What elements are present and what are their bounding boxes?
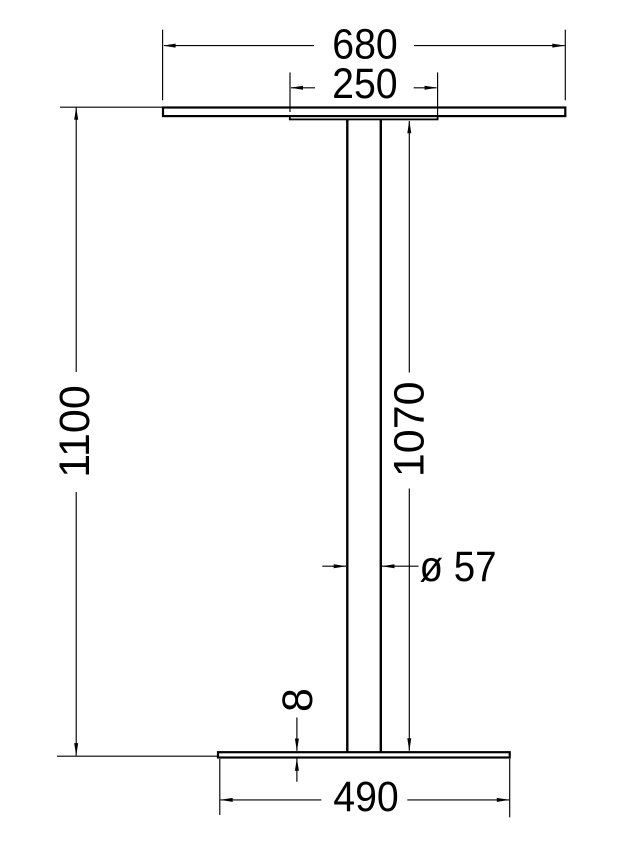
svg-text:8: 8 <box>274 688 322 712</box>
svg-text:490: 490 <box>333 773 399 821</box>
svg-text:1100: 1100 <box>51 385 99 477</box>
svg-text:ø 57: ø 57 <box>420 543 497 591</box>
svg-text:250: 250 <box>332 60 398 108</box>
svg-text:1070: 1070 <box>386 381 434 477</box>
